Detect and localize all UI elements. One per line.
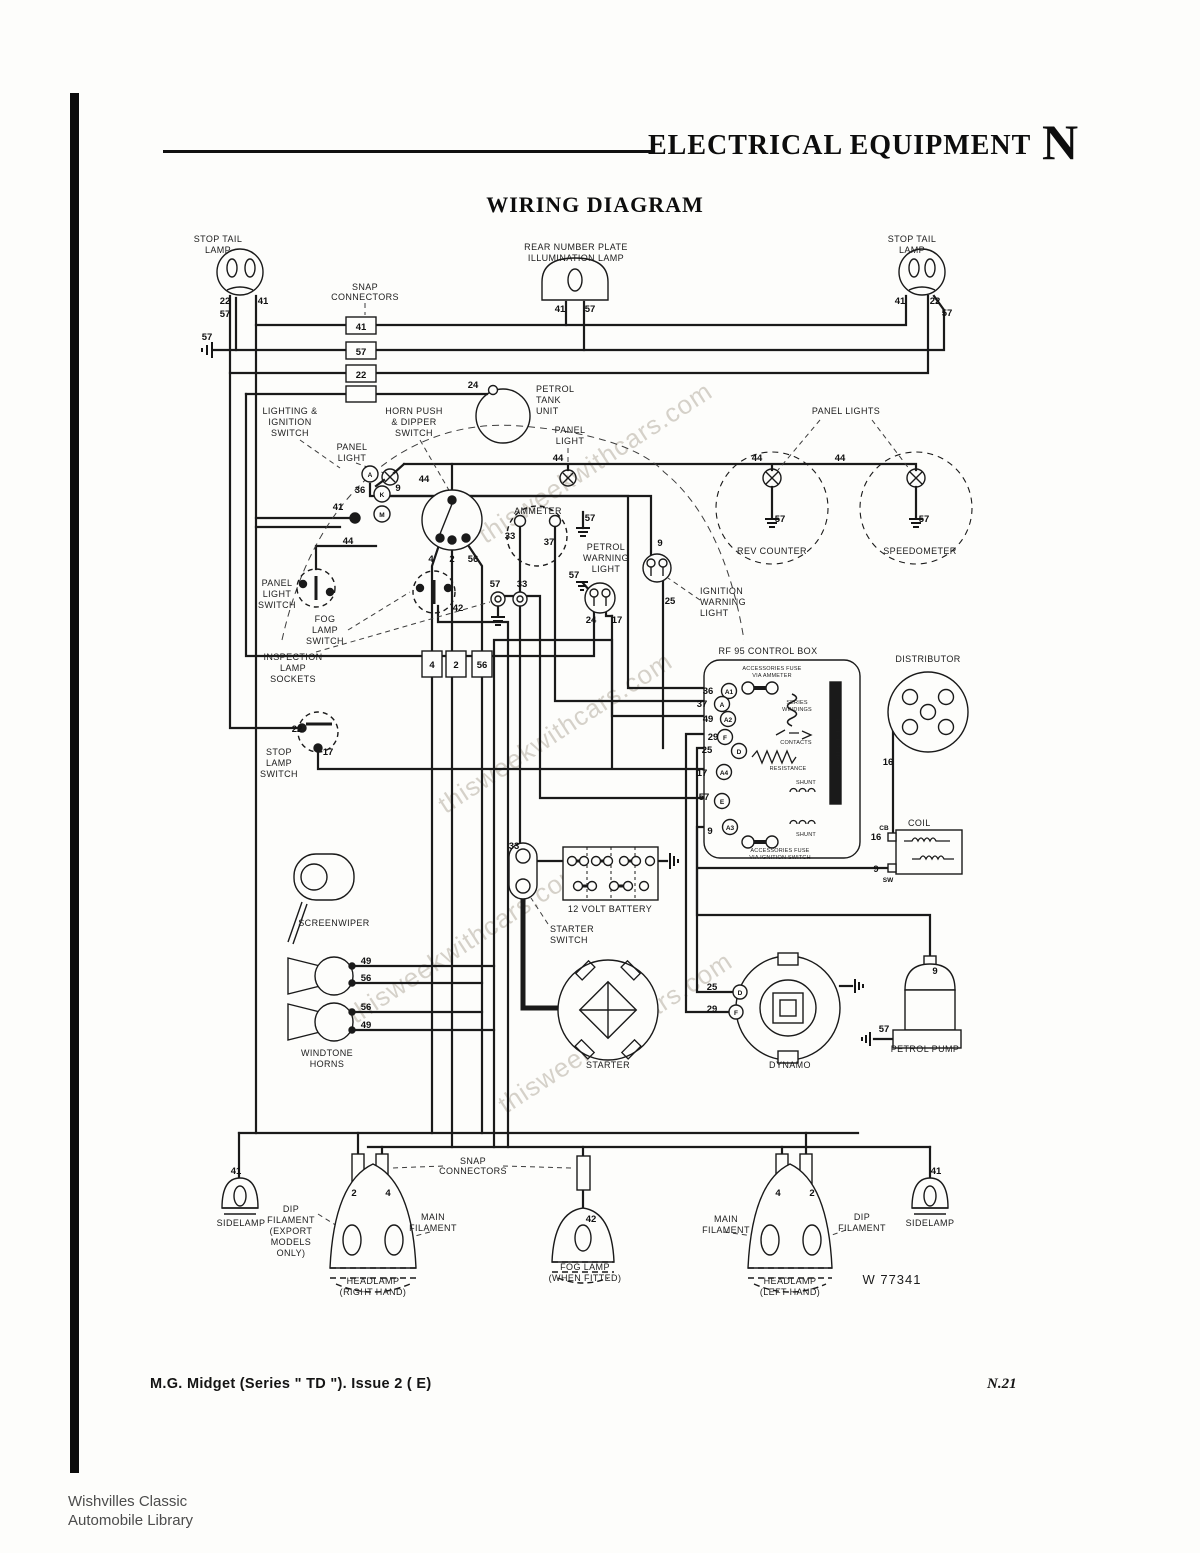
label-speedometer: SPEEDOMETER [883,546,957,556]
wire-number: 41 [258,296,269,307]
wire-number: 56 [477,660,488,671]
library-stamp-line2: Automobile Library [68,1511,193,1530]
horn-dipper-switch [422,490,482,550]
label-fuse-ammeter: ACCESSORIES FUSE [742,666,801,672]
terminal-letter: SW [883,877,894,884]
wire-number: 56 [361,973,372,984]
label-fog-lamp-switch: SWITCH [306,636,344,646]
label-panel-light-switch: SWITCH [258,600,296,610]
wire-number: 17 [612,615,623,626]
ground-icon [202,342,212,358]
label-petrol-warning: PETROL [587,542,625,552]
stop-tail-lamp-left [217,249,263,295]
terminal-letter: M [379,512,384,519]
stop-lamp-switch [298,712,338,752]
wire-number: 17 [323,747,334,758]
wire-number: 44 [553,453,564,464]
wire-number: 57 [942,308,953,319]
wire-number: 41 [895,296,906,307]
wire-4-run [432,542,440,1133]
label-dip-filament-export: (EXPORT [270,1226,313,1236]
wire-number: 49 [361,1020,372,1031]
label-screenwiper: SCREENWIPER [298,918,370,928]
label-fog-lamp: FOG LAMP [560,1262,610,1272]
terminal-letter: F [734,1010,738,1017]
label-snap-connectors-bottom: CONNECTORS [439,1166,507,1176]
wire-number: 41 [231,1166,242,1177]
wire-number: 57 [490,579,501,590]
label-main-filament-right: MAIN [714,1214,738,1224]
wire-22-bus [230,296,928,373]
label-petrol-pump: PETROL PUMP [891,1044,960,1054]
wire-number: 57 [569,570,580,581]
label-starter-switch: STARTER [550,924,594,934]
wire-number: 2 [449,554,454,565]
wire-number: 22 [220,296,231,307]
wiring-diagram: thisweekwithcars.com thisweekwithcars.co… [0,0,1200,1553]
label-headlamp-left: HEADLAMP [764,1276,817,1286]
pointer [348,592,410,630]
wire-number: 33 [517,579,528,590]
wire-number: 29 [708,732,719,743]
label-shunt-upper: SHUNT [796,780,816,786]
wire-number: 42 [453,603,464,614]
label-starter: STARTER [586,1060,630,1070]
wire-number: 22 [292,724,303,735]
label-panel-light-mid: LIGHT [556,436,585,446]
label-inspection-sockets: LAMP [280,663,306,673]
label-fuse-ignition: VIA IGNITION SWITCH [749,855,811,861]
sidelamp-left [222,1178,258,1214]
wire-number: 22 [930,296,941,307]
wire-number: 57 [775,514,786,525]
label-stop-lamp-switch: LAMP [266,758,292,768]
label-rear-number-plate: ILLUMINATION LAMP [528,253,624,263]
panel-light-switch [297,569,335,607]
label-stop-tail-lamp-left: LAMP [205,245,231,255]
screenwiper [288,854,354,944]
terminal-letter: A4 [720,770,729,777]
ignition-warning-light [643,554,671,582]
label-fuse-ignition: ACCESSORIES FUSE [750,848,809,854]
wire-41-switch-pair [256,518,350,527]
wire-number: 9 [707,826,712,837]
label-starter-switch: SWITCH [550,935,588,945]
wire-number: 9 [395,483,400,494]
wire-number: 41 [931,1166,942,1177]
wire-number: 41 [333,502,344,513]
terminal-letter: A [720,702,725,709]
wire-number: 16 [883,757,894,768]
terminal-letter: A2 [724,717,733,724]
sidelamp-right [912,1178,948,1214]
footer-model-line: M.G. Midget (Series " TD "). Issue 2 ( E… [150,1376,431,1392]
label-snap-connectors-top: SNAP [352,282,378,292]
ground-icon [576,528,590,536]
wire-number: 4 [775,1188,781,1199]
label-petrol-warning: WARNING [583,553,629,563]
library-stamp: Wishvilles Classic Automobile Library [68,1492,193,1530]
wire-number: 2 [809,1188,814,1199]
wire-number: 41 [356,322,367,333]
wire-56-run [466,542,482,1133]
fog-lamp-switch [413,571,455,613]
snap-connector-boxes-bottom [352,1154,812,1190]
wire-number: 56 [361,1002,372,1013]
label-fog-lamp-switch: FOG [315,614,336,624]
wire-number: 24 [586,615,597,626]
wire-number: 9 [657,538,662,549]
label-panel-lights-right: PANEL LIGHTS [812,406,880,416]
label-lighting-ignition-switch: IGNITION [268,417,311,427]
terminal-letter: D [738,990,743,997]
number-plate-lamp [542,258,608,300]
label-panel-light-mid: PANEL [555,425,586,435]
wire-number: 57 [585,304,596,315]
windtone-horns [288,957,355,1041]
pointer [778,420,820,470]
terminal-letter: A1 [725,689,734,696]
wire-number: 49 [703,714,714,725]
wire-number: 9 [932,966,937,977]
terminal-letter: A [368,472,373,479]
label-snap-connectors-top: CONNECTORS [331,292,399,302]
wire-number: 25 [707,982,718,993]
label-lighting-ignition-switch: SWITCH [271,428,309,438]
wire-number: 57 [220,309,231,320]
label-headlamp-right: HEADLAMP [347,1276,400,1286]
wire-number: 41 [555,304,566,315]
wire-number: 44 [752,453,763,464]
label-headlamp-right: (RIGHT HAND) [340,1287,407,1297]
wire-number: 37 [544,537,555,548]
headlamp-right [330,1164,416,1292]
label-dip-filament-export: ONLY) [277,1248,306,1258]
wire-number: 33 [509,841,520,852]
wire-number: 42 [586,1214,597,1225]
pointer [300,440,340,468]
wire-number: 57 [585,513,596,524]
label-horn-dipper-switch: SWITCH [395,428,433,438]
label-petrol-tank-unit: PETROL [536,384,574,394]
label-dip-filament-export: DIP [283,1204,299,1214]
pointer [872,420,910,470]
label-battery: 12 VOLT BATTERY [568,904,652,914]
label-series-windings: SERIES [786,700,808,706]
label-windtone-horns: WINDTONE [301,1048,353,1058]
wire-number: 57 [699,792,710,803]
wire-number: 49 [361,956,372,967]
label-panel-light-left: LIGHT [338,453,367,463]
distributor [888,672,968,752]
wire-number: 17 [697,768,708,779]
label-resistance: RESISTANCE [770,766,807,772]
label-petrol-tank-unit: UNIT [536,406,559,416]
ground-icon [670,853,678,869]
label-panel-light-left: PANEL [337,442,368,452]
label-panel-light-switch: LIGHT [263,589,292,599]
headlamp-left [748,1164,832,1292]
terminal-letter: K [380,492,385,499]
ground-icon [862,1032,870,1046]
label-sidelamp-right: SIDELAMP [906,1218,955,1228]
wire-number: 29 [707,1004,718,1015]
ground-icon [491,617,505,625]
wire-number: 44 [419,474,430,485]
label-inspection-sockets: SOCKETS [270,674,316,684]
wire-44-bus [376,464,916,486]
label-dip-filament-right: DIP [854,1212,870,1222]
wire-number: 4 [429,660,435,671]
label-dynamo: DYNAMO [769,1060,811,1070]
dynamo [729,953,840,1063]
wire-number: 4 [385,1188,391,1199]
label-control-box: RF 95 CONTROL BOX [719,646,818,656]
label-stop-lamp-switch: SWITCH [260,769,298,779]
label-inspection-sockets: INSPECTION [263,652,322,662]
wire-number: 25 [702,745,713,756]
coil [888,830,962,874]
label-dip-filament-export: MODELS [271,1237,311,1247]
pointer [503,1166,572,1168]
label-petrol-warning: LIGHT [592,564,621,574]
wire-number: 25 [665,596,676,607]
wire-number: 22 [356,370,367,381]
label-fog-lamp: (WHEN FITTED) [549,1273,622,1283]
wire-number: 16 [871,832,882,843]
label-horn-dipper-switch: & DIPPER [391,417,436,427]
label-sidelamp-left: SIDELAMP [217,1218,266,1228]
label-headlamp-left: (LEFT HAND) [760,1287,820,1297]
terminal-letter: A3 [726,825,735,832]
wire-number: 36 [355,485,366,496]
label-ammeter: AMMETER [514,506,562,516]
label-stop-tail-lamp-right: LAMP [899,245,925,255]
label-windtone-horns: HORNS [310,1059,345,1069]
pointer [392,1166,443,1168]
label-stop-tail-lamp-right: STOP TAIL [888,234,936,244]
terminal-letter: F [723,735,727,742]
label-contacts: CONTACTS [780,740,812,746]
label-rear-number-plate: REAR NUMBER PLATE [524,242,628,252]
terminal-letter: CB [879,825,889,832]
label-distributor: DISTRIBUTOR [895,654,960,664]
drawing-number: W 77341 [862,1272,921,1287]
wire-number: 37 [697,699,708,710]
starter [558,960,658,1060]
label-stop-tail-lamp-left: STOP TAIL [194,234,242,244]
terminal-letter: E [720,799,725,806]
wire-number: 57 [919,514,930,525]
label-lighting-ignition-switch: LIGHTING & [262,406,317,416]
ground-icon [855,979,863,993]
label-horn-dipper-switch: HORN PUSH [385,406,443,416]
wire-42-run [438,606,508,1147]
stop-tail-lamp-right [899,249,945,295]
petrol-warning-light [585,583,615,613]
wire-number: 57 [356,347,367,358]
library-stamp-line1: Wishvilles Classic [68,1492,193,1511]
label-ignition-warning: WARNING [700,597,746,607]
label-coil: COIL [908,818,931,828]
wire-number: 57 [879,1024,890,1035]
label-main-filament-right: FILAMENT [702,1225,750,1235]
wire-number: 2 [351,1188,356,1199]
petrol-pump [893,956,961,1048]
battery [563,847,658,900]
label-stop-lamp-switch: STOP [266,747,292,757]
label-shunt-lower: SHUNT [796,832,816,838]
label-main-filament-left: MAIN [421,1212,445,1222]
label-dip-filament-right: FILAMENT [838,1223,886,1233]
label-petrol-tank-unit: TANK [536,395,561,405]
label-fuse-ammeter: VIA AMMETER [752,673,792,679]
inspection-lamp-sockets [491,592,527,606]
label-main-filament-left: FILAMENT [409,1223,457,1233]
label-dip-filament-export: FILAMENT [267,1215,315,1225]
label-series-windings: WINDINGS [782,707,812,713]
label-fog-lamp-switch: LAMP [312,625,338,635]
wire-44-panel-switch [316,546,376,569]
label-rev-counter: REV COUNTER [737,546,807,556]
wire-number: 24 [468,380,479,391]
label-ignition-warning: IGNITION [700,586,743,596]
wire-number: 36 [703,686,714,697]
wire-number: 2 [453,660,458,671]
manual-page: ELECTRICAL EQUIPMENT N WIRING DIAGRAM th… [0,0,1200,1553]
wire-number: 57 [202,332,213,343]
footer-page-number: N.21 [987,1376,1017,1393]
wire-number: 33 [505,531,516,542]
terminal-letter: D [737,749,742,756]
wire-number: 56 [468,554,479,565]
label-snap-connectors-bottom: SNAP [460,1156,486,1166]
label-regulator-frame: REGULATOR FRAME [834,714,840,772]
wire-number: 4 [428,554,434,565]
wire-number: 44 [343,536,354,547]
label-ignition-warning: LIGHT [700,608,729,618]
wire-number: 9 [873,864,878,875]
wire-number: 44 [835,453,846,464]
label-panel-light-switch: PANEL [262,578,293,588]
